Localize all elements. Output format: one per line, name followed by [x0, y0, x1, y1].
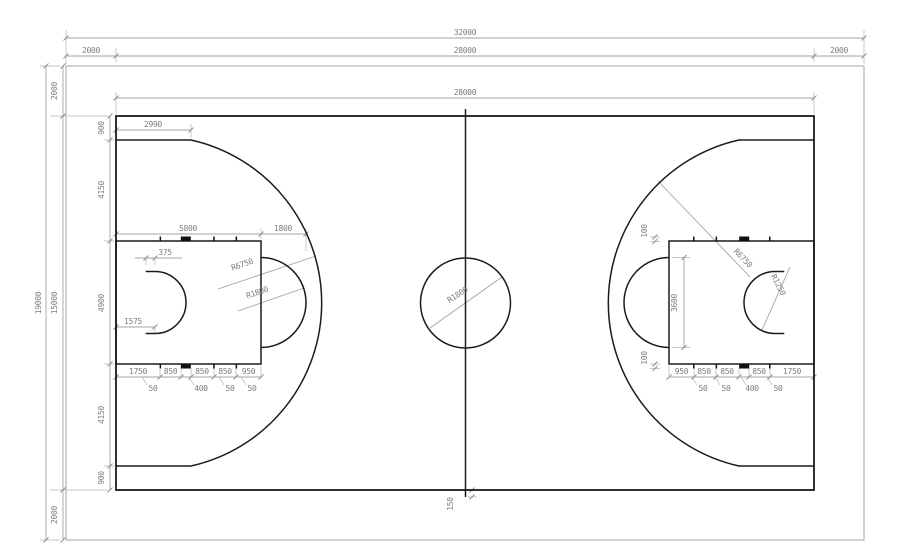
- dim-left-lane-mark-2: 50: [225, 384, 235, 393]
- dim-right-lane-chain-2: 850: [720, 367, 734, 376]
- dim-width-chain-3: 4150: [97, 405, 106, 424]
- dim-right-lane-chain-3: 850: [752, 367, 766, 376]
- court-markings: [116, 109, 814, 497]
- dimension-labels: 32000 2000 28000 2000 28000 19000 2000 1…: [34, 28, 849, 524]
- dim-left-bottom-margin: 2000: [50, 505, 59, 524]
- dim-hash-length-top: 100: [640, 224, 649, 238]
- dim-left-lane-chain-2: 850: [195, 367, 209, 376]
- dim-inner-court-length: 28000: [454, 88, 477, 97]
- dim-left-ft-circle-radius: R1800: [245, 285, 270, 301]
- dim-left-three-point-radius: R6750: [230, 257, 255, 273]
- dim-ft-extension: 1800: [274, 224, 293, 233]
- dim-left-lane-chain-4: 950: [242, 367, 256, 376]
- dim-hash-length-bottom: 100: [640, 351, 649, 365]
- dim-left-top-margin: 2000: [50, 81, 59, 100]
- dim-right-restricted-radius: R1250: [769, 273, 788, 298]
- court-plan-drawing: 32000 2000 28000 2000 28000 19000 2000 1…: [0, 0, 900, 558]
- dimension-lines: [46, 38, 864, 540]
- dim-left-lane-mark-1: 400: [194, 384, 208, 393]
- dim-right-lane-chain-1: 850: [697, 367, 711, 376]
- dim-basket-offset: 1575: [124, 317, 143, 326]
- free-throw-semicircle-right: [624, 258, 669, 348]
- free-throw-semicircle-left: [261, 258, 306, 348]
- dim-right-lane-mark-0: 50: [698, 384, 708, 393]
- three-point-line-right: [608, 140, 814, 466]
- dim-overall-width: 32000: [454, 28, 477, 37]
- dim-width-chain-4: 900: [97, 471, 106, 485]
- dim-key-length: 5800: [179, 224, 198, 233]
- dim-ft-circle-diameter: 3600: [670, 293, 679, 312]
- dim-center-line-extension: 150: [446, 497, 455, 511]
- leader-right-three-point: [658, 181, 750, 277]
- dim-restricted-straight: 375: [158, 248, 172, 257]
- dim-top-right-margin: 2000: [830, 46, 849, 55]
- three-point-line-left: [116, 140, 322, 466]
- restricted-arc-left: [146, 272, 186, 334]
- dim-court-length: 28000: [454, 46, 477, 55]
- dim-right-lane-mark-3: 50: [773, 384, 783, 393]
- dim-left-lane-chain-1: 850: [164, 367, 178, 376]
- dim-width-chain-2: 4900: [97, 293, 106, 312]
- dim-overall-height: 19000: [34, 291, 43, 314]
- dim-right-lane-mark-1: 50: [721, 384, 731, 393]
- dim-width-chain-1: 4150: [97, 180, 106, 199]
- dim-court-width: 15000: [50, 291, 59, 314]
- dim-left-lane-mark-0: 50: [148, 384, 158, 393]
- dim-right-lane-chain-0: 950: [675, 367, 689, 376]
- dim-width-chain-0: 900: [97, 121, 106, 135]
- key-left: [116, 241, 261, 364]
- dim-top-left-margin: 2000: [82, 46, 101, 55]
- dim-right-lane-chain-4: 1750: [783, 367, 802, 376]
- dim-left-lane-chain-0: 1750: [129, 367, 148, 376]
- dim-left-lane-mark-3: 50: [247, 384, 257, 393]
- lane-marks-right: [693, 237, 771, 369]
- dim-right-lane-mark-2: 400: [745, 384, 759, 393]
- dim-right-three-point-radius: R6750: [732, 247, 754, 270]
- dim-corner-to-arc: 2990: [144, 120, 163, 129]
- extension-lines: [40, 30, 864, 540]
- dim-left-lane-chain-3: 850: [218, 367, 232, 376]
